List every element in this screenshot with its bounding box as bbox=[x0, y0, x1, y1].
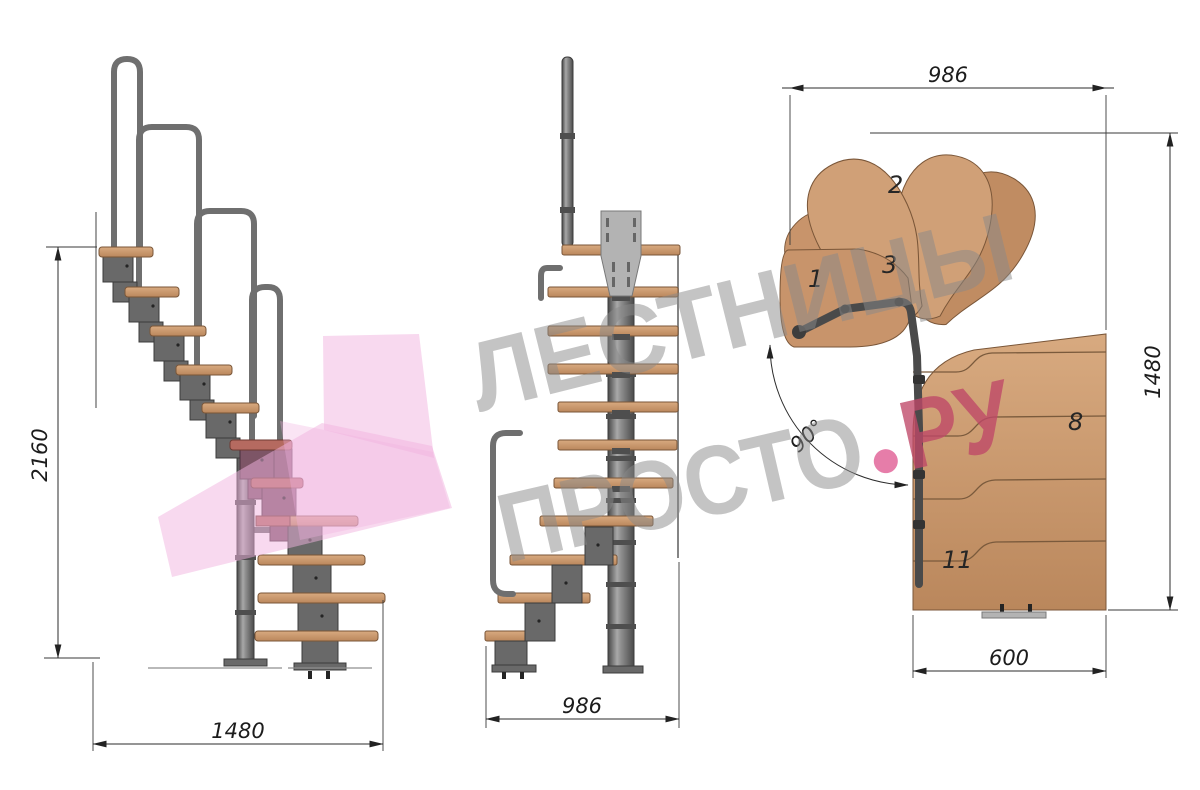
staircase-drawing: 2160 1480 bbox=[0, 0, 1200, 790]
dim-plan-top: 986 bbox=[928, 63, 968, 87]
step-module bbox=[302, 640, 338, 664]
step-tread bbox=[176, 365, 232, 375]
tall-rail-post bbox=[562, 57, 573, 247]
watermark-dot bbox=[871, 447, 900, 476]
tread-number-11: 11 bbox=[942, 546, 973, 574]
step-tread bbox=[150, 326, 206, 336]
watermark-line2-word: ПРОСТО bbox=[487, 393, 874, 584]
step-module bbox=[298, 602, 338, 631]
step-module bbox=[103, 256, 133, 282]
side-steps-upper bbox=[99, 247, 259, 458]
step-tread bbox=[258, 593, 385, 603]
tread-number-2: 2 bbox=[888, 171, 903, 199]
rail-joint bbox=[913, 520, 925, 529]
pole-base-plate bbox=[603, 666, 643, 673]
step-tread bbox=[202, 403, 259, 413]
dim-side-run: 1480 bbox=[211, 719, 264, 743]
base-plate bbox=[492, 665, 536, 672]
step-module bbox=[129, 296, 159, 322]
post-joint bbox=[560, 133, 575, 139]
step-module bbox=[495, 641, 527, 665]
step-module bbox=[293, 564, 331, 593]
pole-base-plate bbox=[224, 659, 267, 666]
post-joint bbox=[560, 207, 575, 213]
step-module bbox=[180, 374, 210, 400]
pole-collar bbox=[235, 610, 256, 615]
step-tread bbox=[125, 287, 179, 297]
staircase-drawing-page: 2160 1480 bbox=[0, 0, 1200, 790]
step-module bbox=[206, 412, 236, 438]
step-module bbox=[154, 335, 184, 361]
tread-number-8: 8 bbox=[1068, 408, 1083, 436]
dim-plan-bottom: 600 bbox=[989, 646, 1029, 670]
step-tread bbox=[99, 247, 153, 257]
step-tread bbox=[258, 555, 365, 565]
step-tread bbox=[255, 631, 378, 641]
dim-side-height: 2160 bbox=[28, 428, 52, 481]
dimension-plan-bottom: 600 bbox=[913, 615, 1106, 678]
dim-plan-right: 1480 bbox=[1141, 345, 1165, 398]
base-plate bbox=[294, 663, 346, 670]
dim-front-width: 986 bbox=[562, 694, 602, 718]
dimension-height: 2160 bbox=[28, 247, 100, 658]
